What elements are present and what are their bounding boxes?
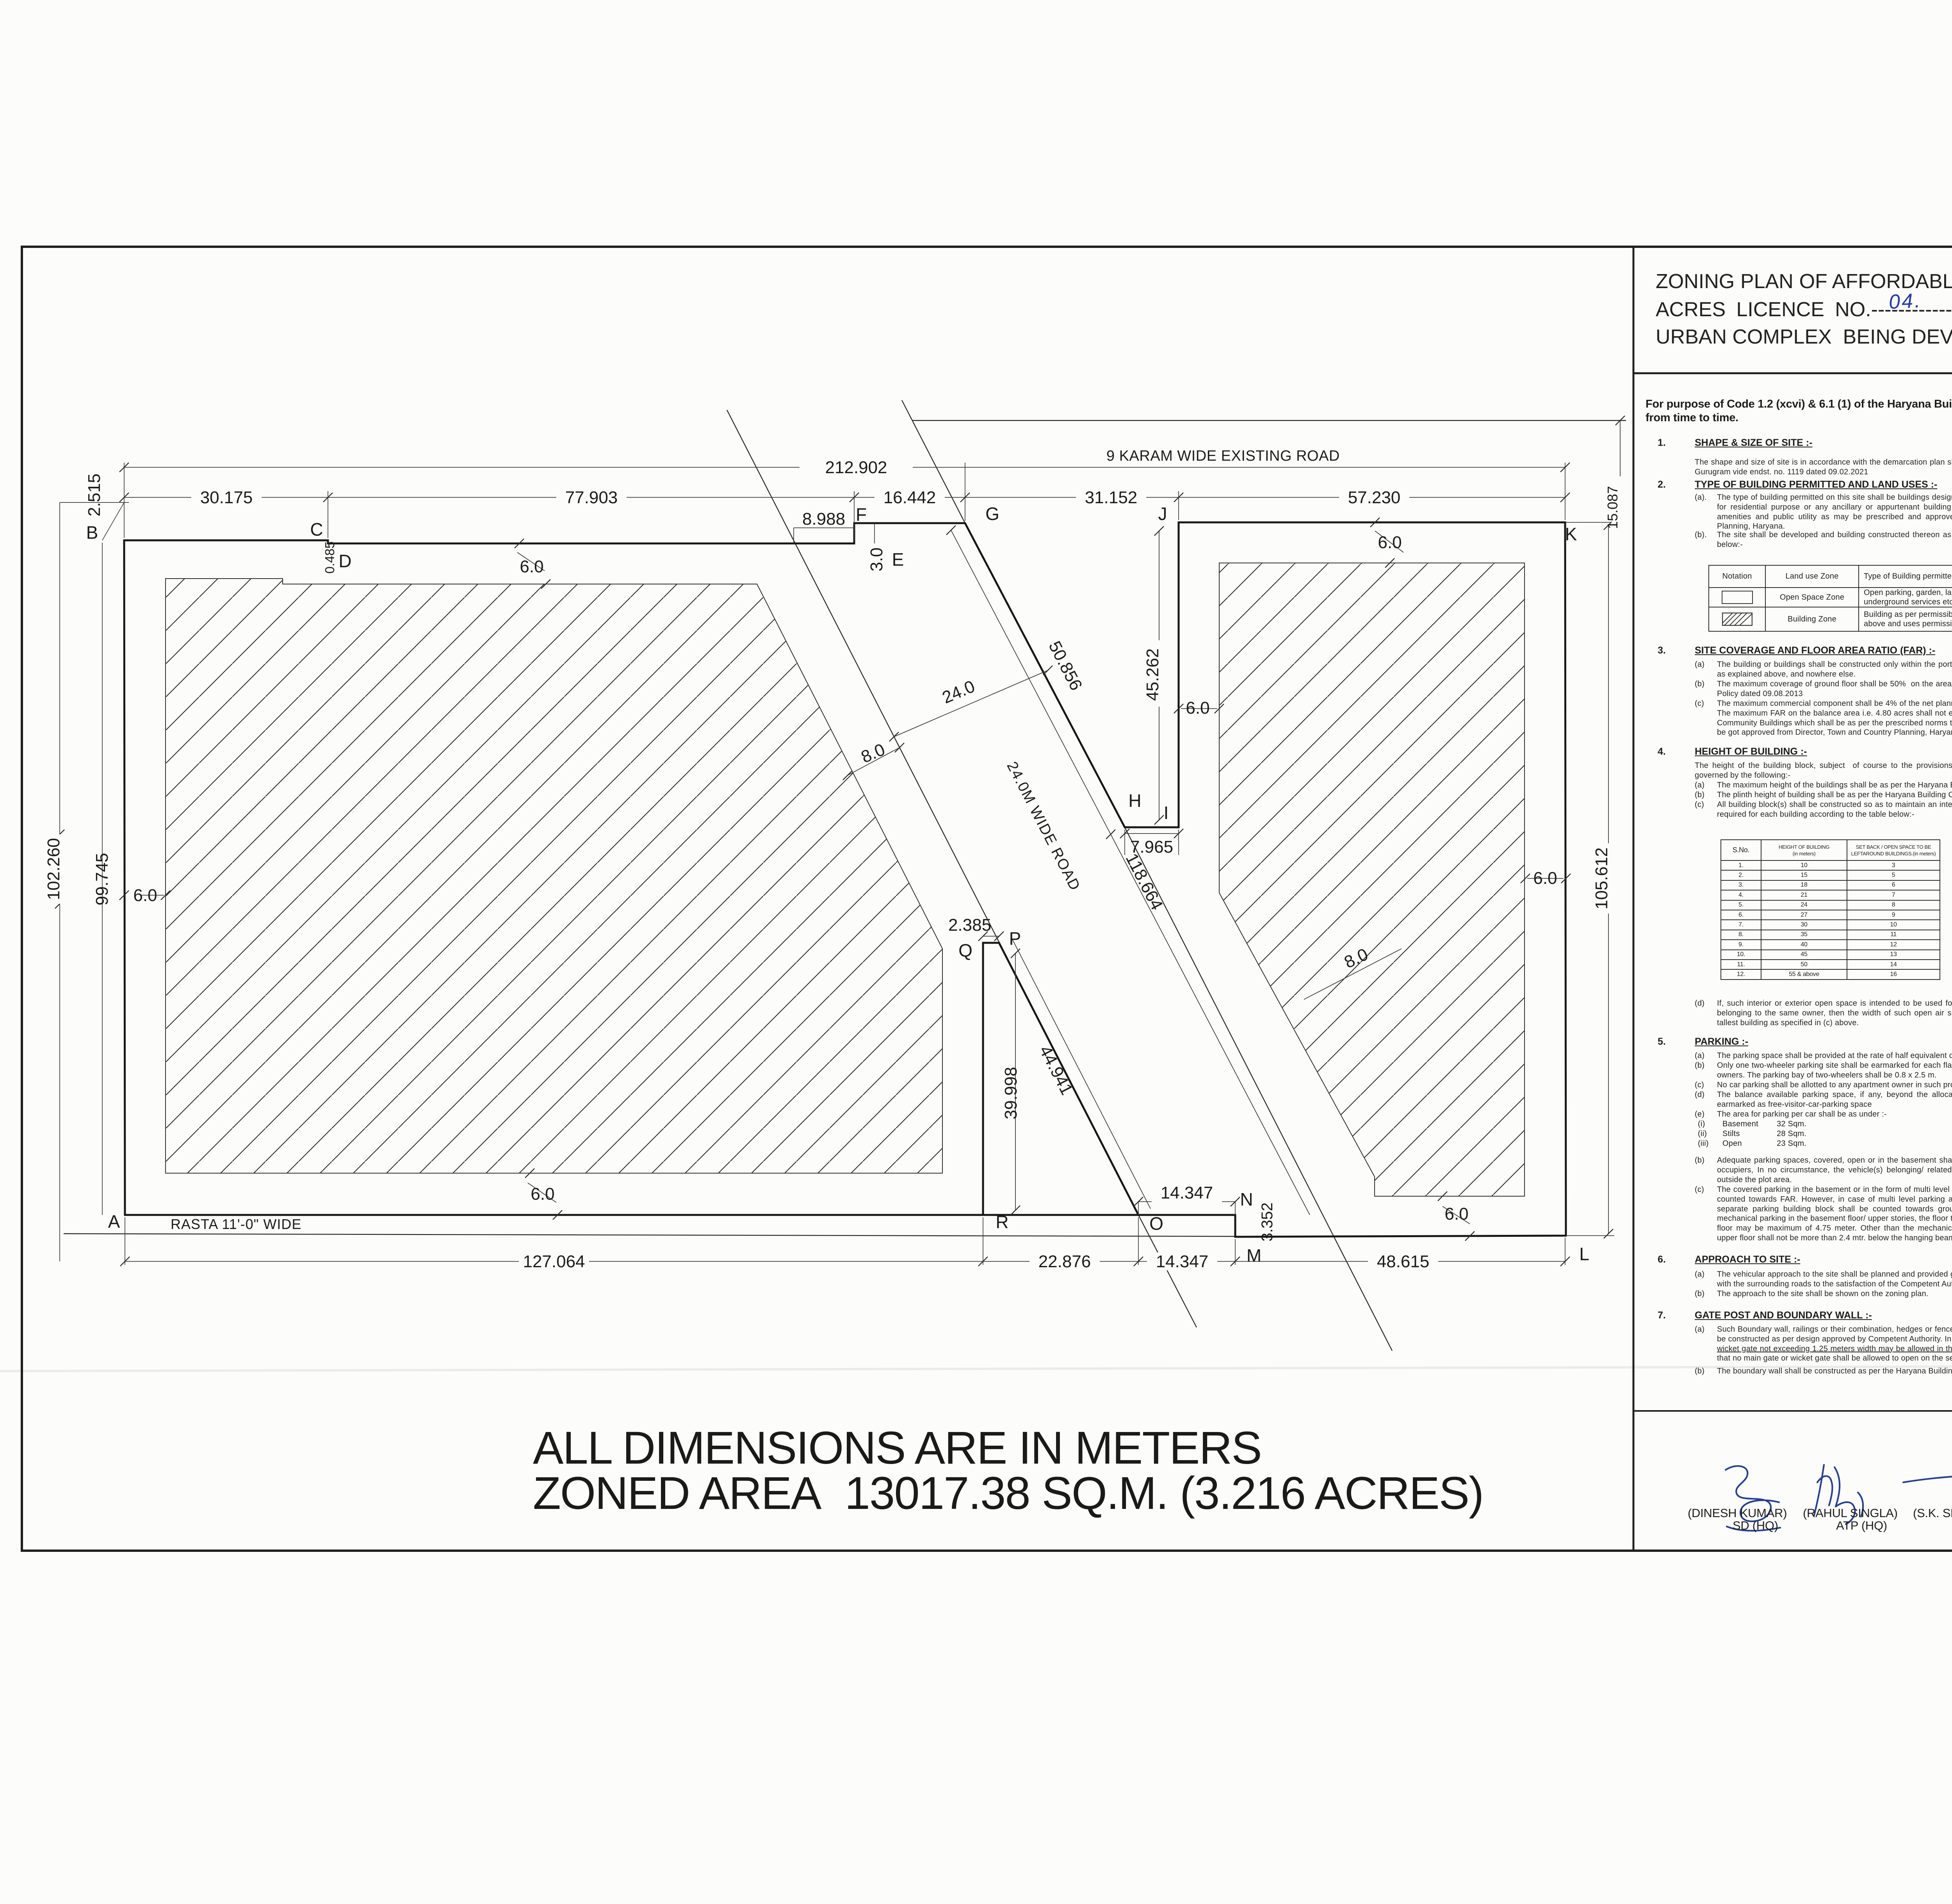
- svg-text:M: M: [1247, 1245, 1261, 1266]
- svg-text:48.615: 48.615: [1377, 1252, 1430, 1271]
- svg-text:30.175: 30.175: [200, 488, 253, 507]
- svg-text:3.0: 3.0: [867, 547, 886, 571]
- svg-text:45.262: 45.262: [1143, 648, 1162, 701]
- svg-text:R: R: [996, 1212, 1008, 1232]
- svg-text:16.442: 16.442: [883, 488, 936, 507]
- svg-text:A: A: [108, 1211, 120, 1232]
- svg-text:2.515: 2.515: [85, 474, 104, 517]
- svg-text:E: E: [892, 549, 904, 570]
- svg-text:RASTA 11'-0" WIDE: RASTA 11'-0" WIDE: [171, 1216, 301, 1232]
- svg-text:K: K: [1565, 524, 1577, 544]
- svg-text:3.352: 3.352: [1259, 1202, 1276, 1241]
- svg-text:105.612: 105.612: [1592, 847, 1611, 909]
- svg-text:14.347: 14.347: [1156, 1252, 1209, 1271]
- svg-text:15.087: 15.087: [1605, 486, 1621, 529]
- svg-text:B: B: [86, 522, 98, 543]
- svg-text:57.230: 57.230: [1348, 488, 1401, 507]
- svg-text:6.0: 6.0: [531, 1184, 554, 1204]
- svg-text:9 KARAM WIDE EXISTING ROAD: 9 KARAM WIDE EXISTING ROAD: [1106, 448, 1340, 464]
- svg-text:22.876: 22.876: [1038, 1252, 1091, 1271]
- svg-text:J: J: [1158, 504, 1167, 524]
- svg-text:44.941: 44.941: [1035, 1042, 1076, 1098]
- svg-text:8.988: 8.988: [802, 509, 845, 529]
- svg-text:6.0: 6.0: [1378, 533, 1402, 552]
- svg-text:8.0: 8.0: [858, 740, 888, 767]
- svg-text:24.0M WIDE ROAD: 24.0M WIDE ROAD: [1003, 759, 1083, 893]
- svg-text:L: L: [1579, 1244, 1589, 1264]
- svg-text:39.998: 39.998: [1001, 1067, 1021, 1120]
- svg-text:O: O: [1149, 1213, 1163, 1234]
- svg-text:2.385: 2.385: [948, 915, 991, 935]
- svg-text:H: H: [1128, 791, 1141, 811]
- svg-text:C: C: [310, 519, 323, 540]
- svg-text:6.0: 6.0: [1533, 869, 1557, 888]
- svg-text:N: N: [1240, 1189, 1253, 1209]
- svg-text:G: G: [985, 504, 999, 524]
- svg-text:102.260: 102.260: [44, 838, 63, 900]
- svg-text:0.485: 0.485: [322, 541, 337, 574]
- svg-text:D: D: [338, 551, 351, 571]
- svg-text:Q: Q: [958, 940, 972, 960]
- svg-text:6.0: 6.0: [1186, 698, 1209, 718]
- svg-text:6.0: 6.0: [520, 557, 543, 576]
- svg-text:127.064: 127.064: [523, 1252, 585, 1271]
- svg-text:77.903: 77.903: [565, 488, 618, 507]
- svg-text:31.152: 31.152: [1085, 488, 1138, 507]
- svg-text:99.745: 99.745: [93, 853, 112, 906]
- svg-text:P: P: [1009, 928, 1021, 949]
- svg-text:I: I: [1164, 803, 1169, 823]
- svg-text:6.0: 6.0: [133, 886, 157, 905]
- svg-text:6.0: 6.0: [1444, 1204, 1468, 1224]
- svg-text:F: F: [856, 504, 867, 525]
- svg-text:212.902: 212.902: [825, 458, 887, 477]
- svg-text:14.347: 14.347: [1161, 1183, 1213, 1202]
- svg-text:118.664: 118.664: [1122, 850, 1167, 913]
